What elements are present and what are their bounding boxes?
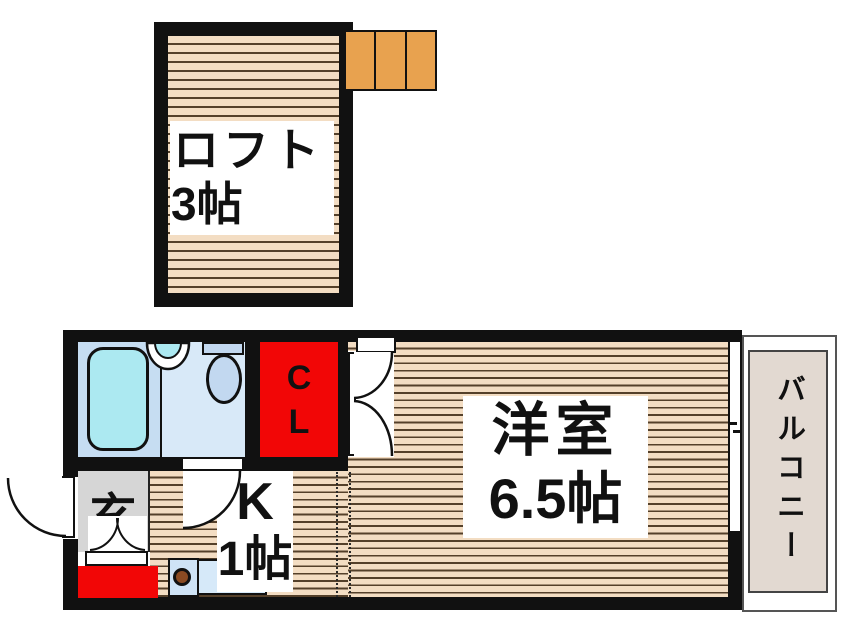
western-room-size: 6.5帖 — [459, 467, 652, 531]
shoe-cabinet — [78, 566, 158, 598]
loft-edge-dotted-line — [336, 472, 338, 597]
balcony-window — [728, 342, 742, 531]
closet-door-top-leaf — [356, 336, 396, 353]
kitchen-name: K — [217, 474, 293, 529]
loft-stairs — [344, 30, 437, 91]
kitchen-size: 1帖 — [212, 532, 298, 587]
wall-bottom — [63, 597, 742, 610]
bathtub — [87, 347, 149, 451]
stairs-step — [407, 32, 435, 89]
closet-label-c: C — [287, 356, 312, 400]
bathroom-divider — [160, 342, 162, 457]
bathroom-door-leaf — [181, 457, 244, 471]
closet-label-l: L — [289, 400, 310, 444]
wall-closet-right — [338, 330, 348, 471]
front-door-swing-fill — [8, 478, 66, 536]
entrance-step — [85, 551, 148, 566]
loft-size: 3帖 — [171, 181, 243, 227]
loft-name: ロフト — [173, 127, 323, 173]
stairs-step — [346, 32, 376, 89]
front-door-leaf — [62, 476, 75, 538]
entrance-inner-door-area — [88, 516, 147, 552]
balcony-label: バルコニー — [774, 374, 803, 569]
wall-top — [63, 330, 742, 342]
stove-burner — [173, 568, 191, 586]
stairs-step — [376, 32, 406, 89]
toilet-bowl — [206, 354, 242, 404]
closet-door-closed-leaf — [348, 352, 356, 456]
floor-plan: ロフト 3帖 C L 玄 K 1帖 — [0, 0, 846, 634]
balcony-floor: バルコニー — [748, 350, 828, 593]
window-sash-mark — [728, 422, 737, 425]
closet-block: C L — [260, 342, 338, 457]
loft-edge-dotted-line — [349, 472, 351, 597]
western-room-name: 洋室 — [463, 399, 648, 463]
window-sash-mark — [733, 430, 742, 433]
wall-bath-closet-divider — [245, 330, 260, 471]
front-door-swing-arc — [8, 478, 66, 536]
